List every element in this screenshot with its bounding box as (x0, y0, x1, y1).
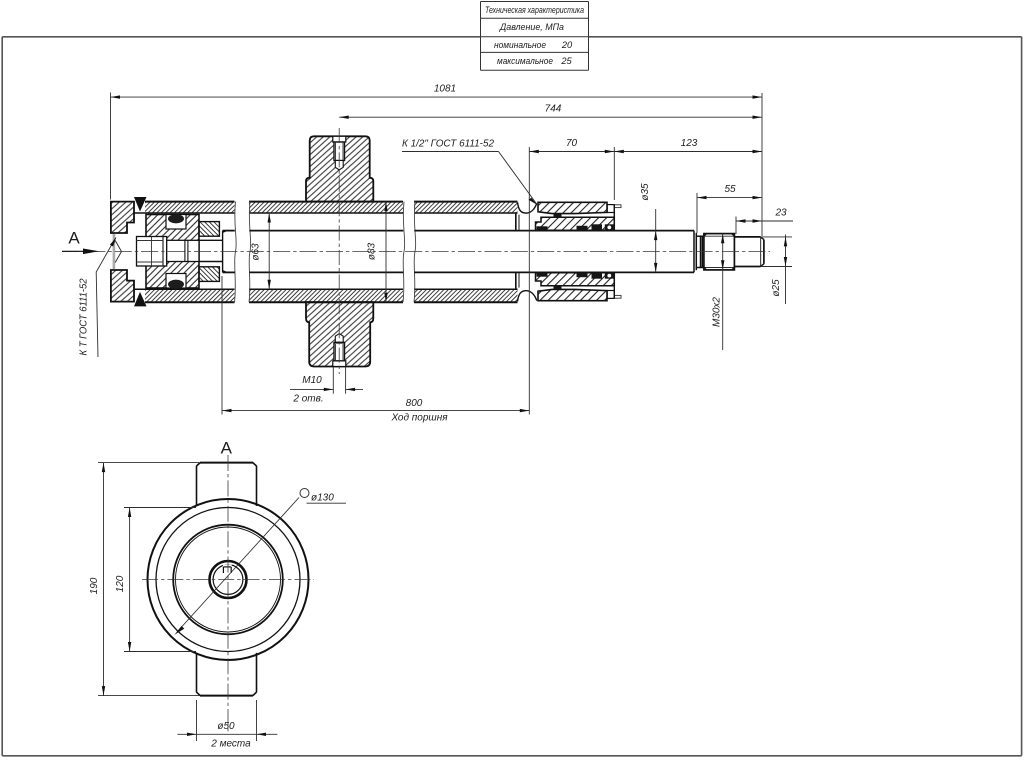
svg-text:25: 25 (560, 56, 572, 66)
svg-text:ø63: ø63 (251, 243, 262, 261)
svg-text:М30х2: М30х2 (712, 297, 723, 327)
svg-text:максимальное: максимальное (497, 56, 553, 66)
svg-text:Давление, МПа: Давление, МПа (499, 22, 564, 32)
svg-text:ø50: ø50 (217, 721, 235, 732)
svg-text:К 1/2" ГОСТ 6111-52: К 1/2" ГОСТ 6111-52 (402, 139, 494, 150)
svg-text:70: 70 (566, 138, 578, 149)
svg-text:55: 55 (724, 184, 736, 195)
svg-text:ø35: ø35 (640, 183, 651, 201)
svg-text:190: 190 (89, 577, 100, 594)
svg-text:ø130: ø130 (311, 493, 334, 504)
svg-text:Ход поршня: Ход поршня (390, 413, 448, 424)
svg-text:A: A (68, 229, 80, 248)
svg-text:744: 744 (545, 104, 562, 115)
svg-text:К Т ГОСТ 6111-52: К Т ГОСТ 6111-52 (79, 278, 90, 355)
svg-text:23: 23 (774, 208, 787, 219)
svg-text:20: 20 (561, 40, 573, 50)
svg-text:123: 123 (681, 138, 698, 149)
svg-text:2 места: 2 места (210, 739, 251, 750)
svg-text:Техническая характеристика: Техническая характеристика (485, 5, 584, 15)
svg-text:2 отв.: 2 отв. (292, 394, 323, 405)
svg-text:ø83: ø83 (367, 242, 378, 260)
svg-text:120: 120 (115, 575, 126, 592)
svg-text:ø25: ø25 (771, 279, 782, 297)
svg-text:1081: 1081 (434, 84, 456, 95)
svg-text:A: A (221, 439, 233, 458)
svg-text:800: 800 (406, 398, 423, 409)
svg-text:М10: М10 (302, 375, 322, 386)
svg-text:номинальное: номинальное (494, 40, 546, 50)
